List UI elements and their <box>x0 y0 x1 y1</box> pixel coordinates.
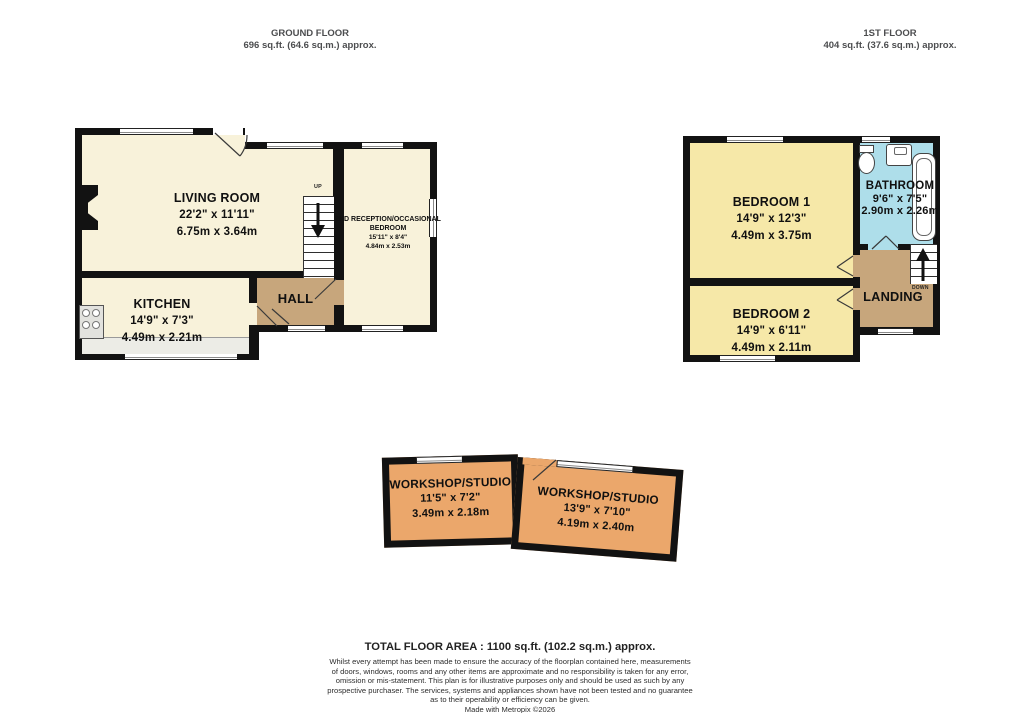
room-dim-metric: 6.75m x 3.64m <box>82 224 352 241</box>
ground-floor-header: GROUND FLOOR 696 sq.ft. (64.6 sq.m.) app… <box>190 28 430 51</box>
disclaimer-line: prospective purchaser. The services, sys… <box>200 686 820 696</box>
workshop-left: WORKSHOP/STUDIO 11'5" x 7'2" 3.49m x 2.1… <box>382 454 520 548</box>
wall-step-outside <box>245 128 340 142</box>
window <box>417 456 462 464</box>
window <box>878 328 913 335</box>
disclaimer-line: omission or mis-statement. This plan is … <box>200 676 820 686</box>
toilet-bowl-icon <box>858 152 875 174</box>
room-name: HALL <box>257 290 334 307</box>
room-name: 2ND RECEPTION/OCCASIONAL <box>332 215 444 224</box>
room-dim-imperial: 14'9" x 7'3" <box>82 313 242 330</box>
room-dim-metric: 4.49m x 2.11m <box>690 340 853 357</box>
reception-label: 2ND RECEPTION/OCCASIONAL BEDROOM 15'11" … <box>332 215 444 251</box>
room-name: WORKSHOP/STUDIO <box>389 474 510 492</box>
window <box>120 128 193 135</box>
room-name: BATHROOM <box>838 180 962 193</box>
workshop-right: WORKSHOP/STUDIO 13'9" x 7'10" 4.19m x 2.… <box>511 457 684 562</box>
kitchen-hall-opening <box>249 303 257 325</box>
window <box>125 353 237 360</box>
window <box>362 142 403 149</box>
room-dim-imperial: 14'9" x 12'3" <box>690 211 853 228</box>
disclaimer: Whilst every attempt has been made to en… <box>200 657 820 713</box>
workshop-left-label: WORKSHOP/STUDIO 11'5" x 7'2" 3.49m x 2.1… <box>389 474 511 522</box>
disclaimer-line: of doors, windows, rooms and any other i… <box>200 667 820 677</box>
room-name: KITCHEN <box>82 296 242 313</box>
bedroom1-door-opening <box>853 255 860 277</box>
sink-icon <box>886 144 912 166</box>
room-dim-imperial: 15'11" x 8'4" <box>332 233 444 242</box>
disclaimer-line: Whilst every attempt has been made to en… <box>200 657 820 667</box>
hall-reception-opening <box>334 280 344 305</box>
window <box>727 136 783 143</box>
room-name: LIVING ROOM <box>82 190 352 207</box>
disclaimer-line: as to their operability or efficiency ca… <box>200 695 820 705</box>
front-door <box>288 325 325 332</box>
window <box>557 460 632 473</box>
first-floor-title: 1ST FLOOR <box>770 28 1010 40</box>
room-name: BEDROOM <box>332 224 444 233</box>
floorplan-page: GROUND FLOOR 696 sq.ft. (64.6 sq.m.) app… <box>0 0 1020 713</box>
stairs-down-label: DOWN <box>912 285 942 291</box>
bedroom2-label: BEDROOM 2 14'9" x 6'11" 4.49m x 2.11m <box>690 306 853 357</box>
stairs-up-label: UP <box>304 184 332 190</box>
ground-floor-title: GROUND FLOOR <box>190 28 430 40</box>
total-floor-area: TOTAL FLOOR AREA : 1100 sq.ft. (102.2 sq… <box>230 640 790 654</box>
room-name: BEDROOM 2 <box>690 306 853 323</box>
credit-line: Made with Metropix ©2026 <box>200 705 820 713</box>
room-dim-metric: 3.49m x 2.18m <box>390 504 511 522</box>
workshop-right-label: WORKSHOP/STUDIO 13'9" x 7'10" 4.19m x 2.… <box>519 482 674 539</box>
window <box>862 136 890 143</box>
patio-door-opening <box>213 128 243 135</box>
room-dim-metric: 4.49m x 2.21m <box>82 330 242 347</box>
room-dim-imperial: 9'6" x 7'5" <box>838 193 962 206</box>
stairs-down <box>910 244 937 284</box>
first-floor-area: 404 sq.ft. (37.6 sq.m.) approx. <box>770 40 1010 52</box>
kitchen-label: KITCHEN 14'9" x 7'3" 4.49m x 2.21m <box>82 296 242 347</box>
room-dim-imperial: 22'2" x 11'11" <box>82 207 352 224</box>
workshop-door-opening <box>522 457 556 467</box>
first-floor-header: 1ST FLOOR 404 sq.ft. (37.6 sq.m.) approx… <box>770 28 1010 51</box>
room-dim-metric: 2.90m x 2.26m <box>838 205 962 218</box>
ground-floor-area: 696 sq.ft. (64.6 sq.m.) approx. <box>190 40 430 52</box>
window <box>267 142 323 149</box>
hall-label: HALL <box>257 290 334 307</box>
bathroom-label: BATHROOM 9'6" x 7'5" 2.90m x 2.26m <box>838 180 962 218</box>
room-name: BEDROOM 1 <box>690 194 853 211</box>
window <box>362 325 403 332</box>
bedroom1-label: BEDROOM 1 14'9" x 12'3" 4.49m x 3.75m <box>690 194 853 245</box>
room-dim-imperial: 14'9" x 6'11" <box>690 323 853 340</box>
living-room-label: LIVING ROOM 22'2" x 11'11" 6.75m x 3.64m <box>82 190 352 241</box>
room-dim-metric: 4.49m x 3.75m <box>690 228 853 245</box>
bathroom-door-opening <box>868 244 898 250</box>
room-dim-metric: 4.84m x 2.53m <box>332 242 444 251</box>
